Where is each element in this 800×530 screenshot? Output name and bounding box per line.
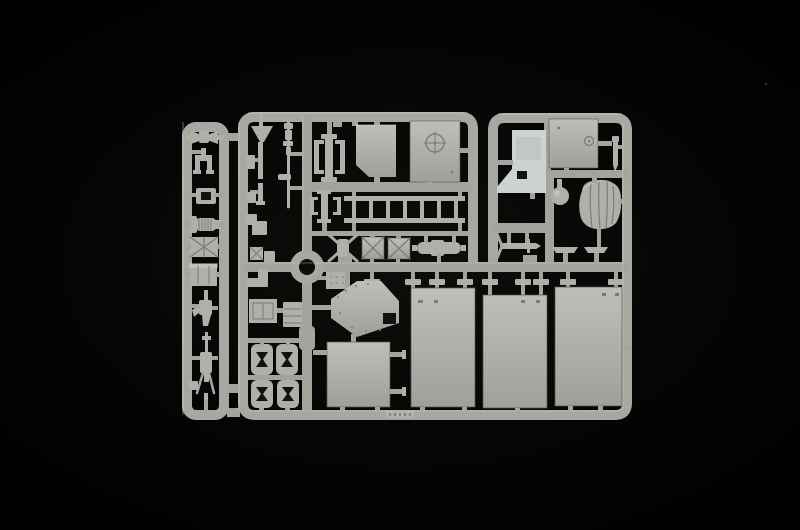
side-lug [189,381,198,390]
rifle-b-bipod [191,332,218,411]
dust-speck [765,83,768,86]
bed-panel-d [555,287,622,412]
bed-panel-b [411,288,475,412]
toolbox-x [187,237,222,257]
mirror-bracket-2 [276,341,298,375]
windshield-frame [497,130,546,199]
mirror-bracket-3 [251,380,273,412]
bed-panel-c [483,295,547,413]
mirror-bracket-1 [251,341,273,375]
tarp-roll [579,178,624,248]
mirror-bracket-4 [277,380,299,412]
engine-block [283,302,302,327]
rifle-a [191,290,218,326]
step-bracket-a [552,247,578,263]
u-joint-a [314,122,345,182]
sprue-photo [0,0,800,530]
standing-rifle [278,121,302,210]
frame-ring [188,188,222,204]
clamp-bracket [191,148,214,174]
roof-panel-b-hatch [410,121,473,186]
ladder [344,192,465,231]
cab-roof-panel [549,119,612,173]
muffler [186,216,224,233]
u-joint-b [310,190,341,231]
hatch-square-a [362,232,384,263]
sprue-runner-tree [182,83,767,418]
fender-plate [312,272,399,343]
roof-panel-a [356,120,396,182]
roller-drum [412,236,466,263]
mold-marking [386,411,414,418]
model-kit-sprue [0,0,800,530]
hatch-square-b [388,233,410,263]
mirror-arm [612,136,623,172]
step-bracket-b [584,247,608,263]
radio-box [249,299,283,323]
tow-lug [186,131,223,144]
tow-pintle [497,233,541,258]
stowage-box [186,263,222,286]
bed-panel-a [313,342,406,412]
